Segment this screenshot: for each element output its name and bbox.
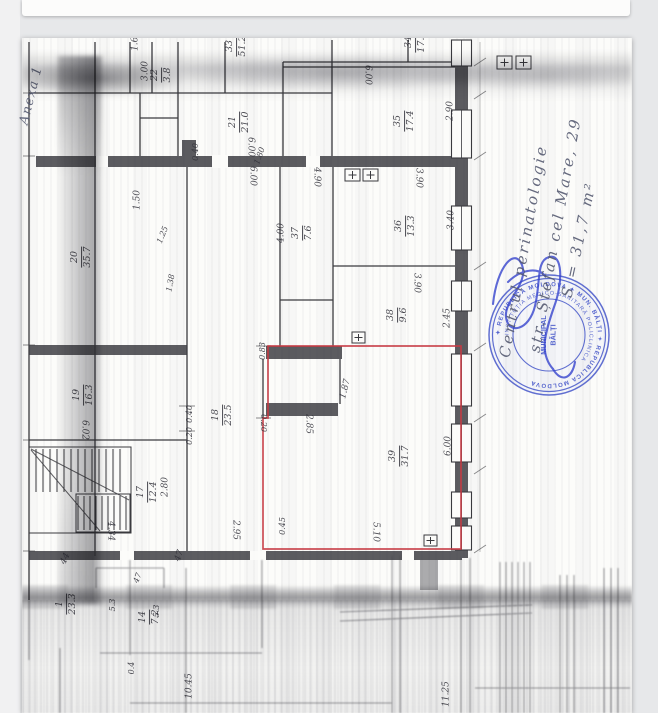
staircase — [29, 447, 131, 533]
floor-plan-drawing: ✦ REPUBLICA MOLDOVA ✦ MUN. BĂLȚI ✦ REPUB… — [0, 0, 658, 713]
lower-floor-faded-lines — [29, 556, 630, 713]
red-highlight-outline — [263, 346, 461, 549]
stamp-center-text: BĂLȚI — [549, 324, 558, 345]
wall-lines — [23, 40, 531, 600]
